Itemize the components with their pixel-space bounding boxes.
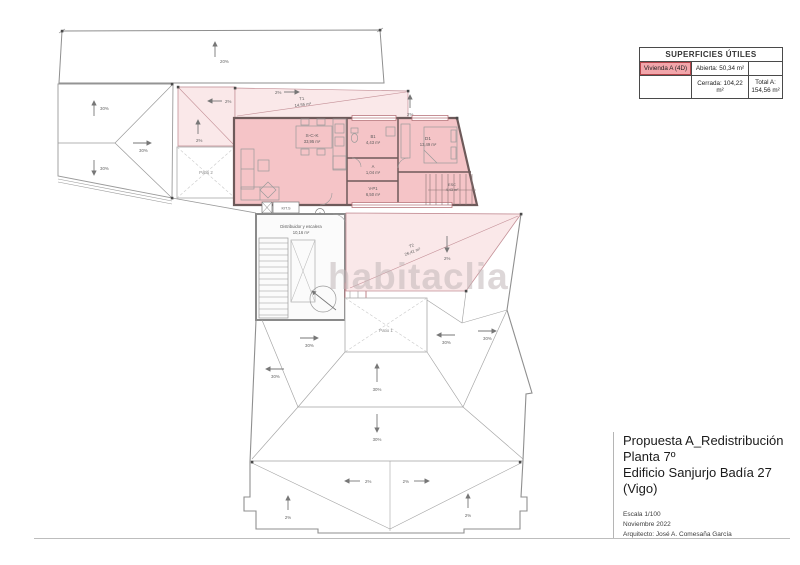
scale-label: Escala 1/100	[623, 510, 798, 520]
slope-label: 2%	[403, 479, 409, 484]
vestibulo-area: 6,50 m²	[366, 192, 381, 197]
bedroom-area: 13,49 m²	[420, 142, 437, 147]
kit-label: KIT.S	[281, 207, 291, 211]
terrace-t1	[235, 88, 410, 118]
slope-label: 20%	[220, 59, 229, 64]
distribuidor-area: 10,16 m²	[293, 230, 310, 235]
slope-label: 30%	[373, 387, 382, 392]
legend-title: SUPERFICIES ÚTILES	[640, 48, 782, 62]
legend-table: Vivienda A (4D) Abierta: 50,34 m² Cerrad…	[640, 62, 782, 98]
vestibulo-label: V-P1	[368, 186, 378, 191]
title-block-details: Escala 1/100 Noviembre 2022 Arquitecto: …	[623, 510, 798, 540]
distribuidor-label: Distribuidor y escalera	[280, 224, 322, 229]
project-title: Propuesta A_Redistribución	[623, 433, 798, 449]
closet-area: 1,04 m²	[366, 170, 381, 175]
slope-label: 2%	[465, 513, 471, 518]
slope-label: 30%	[139, 148, 148, 153]
patio1-label: Patio 1	[379, 328, 393, 333]
legend-abierta: Abierta: 50,34 m²	[692, 62, 749, 76]
terrace-t2	[346, 213, 521, 291]
building-label: Edificio Sanjurjo Badía 27 (Vigo)	[623, 465, 798, 497]
legend-cerrada: Cerrada: 104,22 m²	[692, 76, 749, 98]
legend-total-line1: Total A:	[755, 79, 776, 87]
slope-label: 30%	[305, 343, 314, 348]
bath-label: B1	[370, 134, 376, 139]
slope-label: 2%	[275, 90, 281, 95]
slope-label: 30%	[100, 106, 109, 111]
legend-empty-cell	[749, 62, 782, 76]
slope-label: 2%	[365, 479, 371, 484]
legend-empty-cell	[640, 76, 692, 98]
architect-label: Arquitecto: José A. Comesaña García	[623, 530, 798, 540]
legend-total: Total A: 154,56 m²	[749, 76, 782, 98]
apartment	[234, 116, 477, 208]
titleblock-divider	[613, 432, 614, 539]
legend-unit-label: Vivienda A (4D)	[640, 62, 692, 76]
stairs-label: ESC	[448, 183, 456, 187]
title-block: Propuesta A_Redistribución Planta 7º Edi…	[623, 433, 798, 540]
legend-total-line2: 154,56 m²	[751, 87, 779, 95]
slope-label: 30%	[100, 166, 109, 171]
terrace-upper-square	[178, 87, 235, 146]
slope-label: 2%	[225, 99, 231, 104]
bath-area: 4,43 m²	[366, 140, 381, 145]
slope-label: 30%	[442, 340, 451, 345]
patio2-label: Patio 2	[199, 170, 213, 175]
slope-label: 30%	[373, 437, 382, 442]
slope-label: 30%	[271, 374, 280, 379]
floor-label: Planta 7º	[623, 449, 798, 465]
legend-superficies: SUPERFICIES ÚTILES Vivienda A (4D) Abier…	[639, 47, 783, 99]
slope-label: 2%	[444, 256, 450, 261]
slope-label: 30%	[483, 336, 492, 341]
stairs-area: 4,43 m²	[446, 188, 460, 192]
sheet: 20% 30% 30% 30% 2% 2% 2%	[0, 0, 800, 565]
slope-label: 2%	[285, 515, 291, 520]
living-area: 33,95 m²	[304, 139, 321, 144]
date-label: Noviembre 2022	[623, 520, 798, 530]
top-roof	[59, 28, 384, 83]
slope-label: 2%	[196, 138, 202, 143]
closet-label: A	[372, 164, 375, 169]
